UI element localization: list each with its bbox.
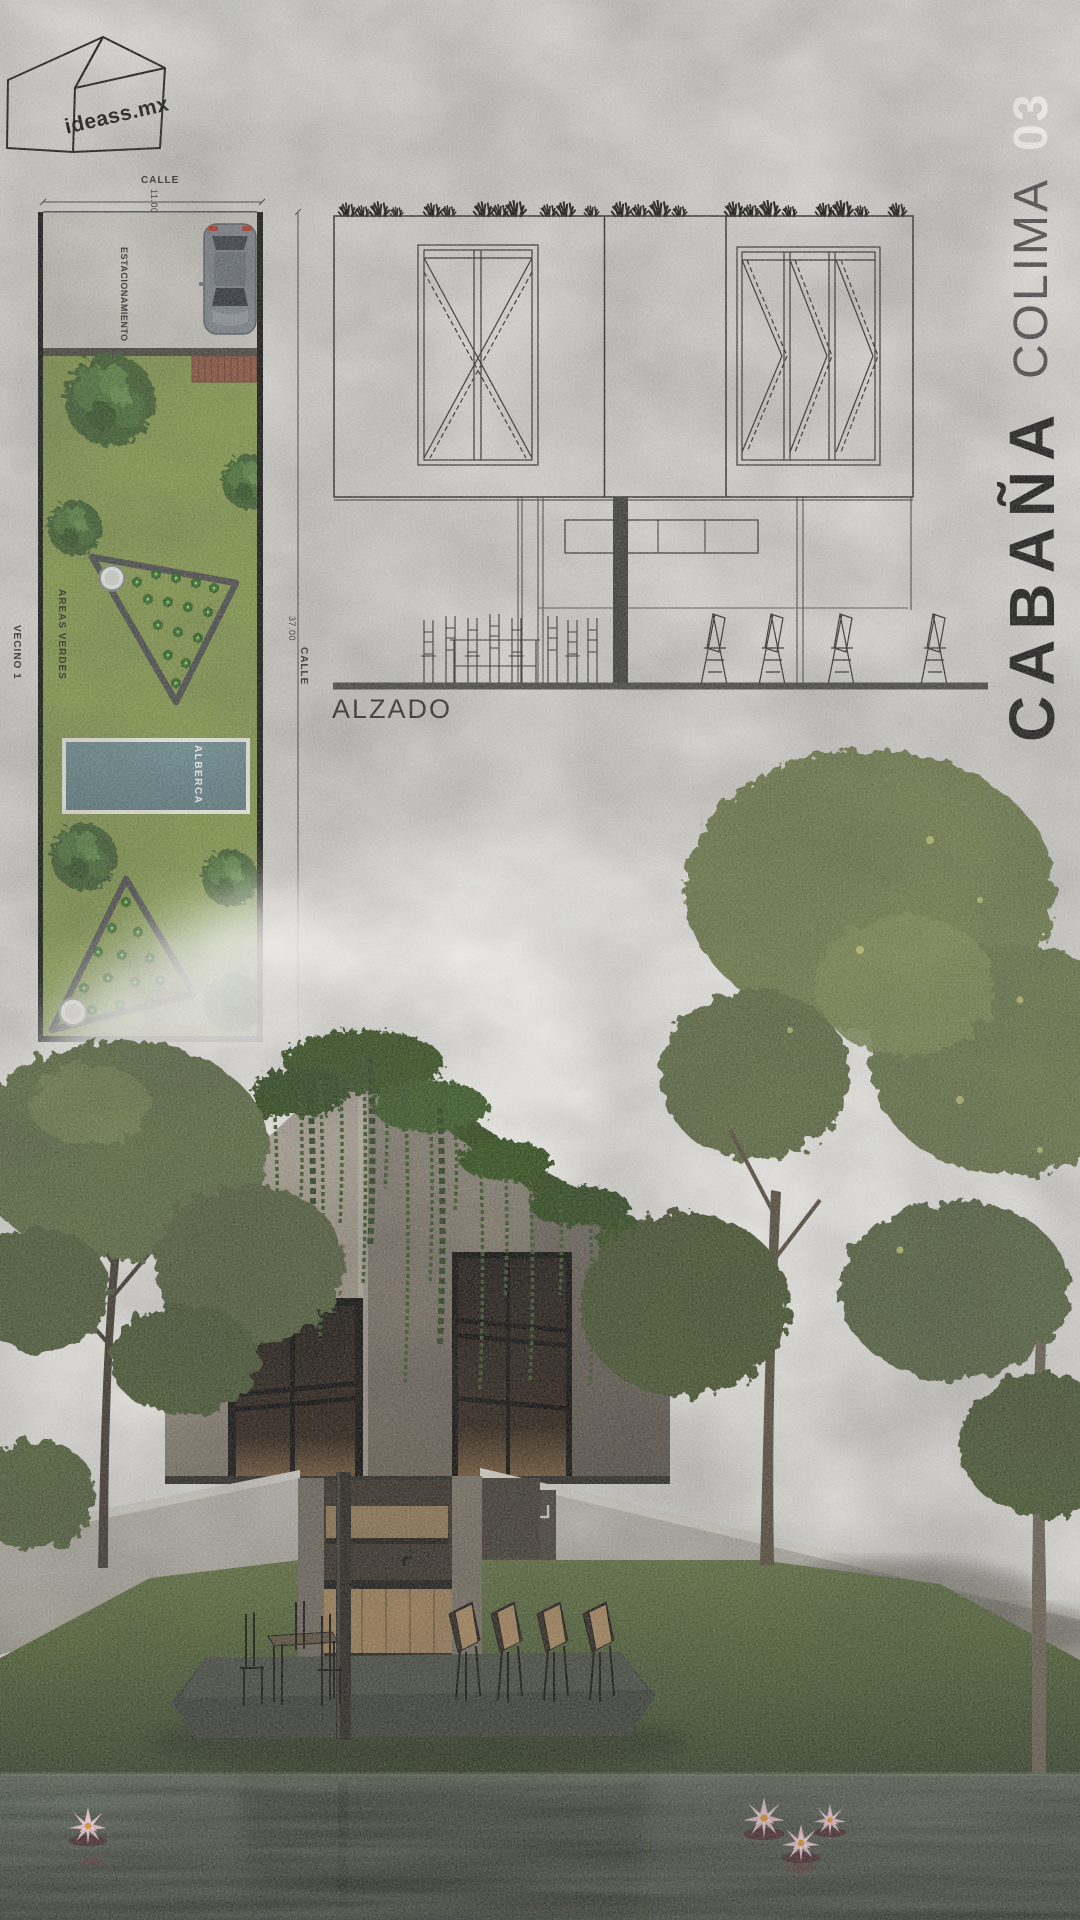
roof-grass-tufts <box>338 200 907 217</box>
deck <box>192 356 257 382</box>
plan-tree-icon <box>65 355 156 446</box>
site-wall <box>43 348 257 356</box>
street-label-right: CALLE <box>298 647 308 685</box>
title-number: 03 <box>1005 91 1058 150</box>
neighbor1-label: VECINO 1 <box>11 625 21 680</box>
elevation-label: ALZADO <box>332 694 452 725</box>
parking-label: ESTACIONAMIENTO <box>119 247 128 342</box>
width-dimension: 11.00 <box>149 189 158 213</box>
render-pond <box>0 1772 1080 1920</box>
elevation-column <box>613 497 628 687</box>
render-view <box>0 740 1080 1920</box>
car-icon <box>199 224 261 334</box>
clerestory-window <box>565 520 758 553</box>
elevation-drawing <box>320 140 1020 740</box>
title-location: COLIMA <box>1005 177 1058 379</box>
street-label-top: CALLE <box>141 176 179 186</box>
presentation-board: ideass.mx <box>0 0 1080 1920</box>
depth-dimension: 37.00 <box>287 616 296 641</box>
folding-chairs-drawing <box>701 614 947 685</box>
green-areas-label: AREAS VERDES <box>56 589 66 680</box>
render-window-right <box>452 1252 572 1482</box>
dining-set-drawing <box>421 614 597 684</box>
project-title: CABAÑACOLIMA03 <box>996 42 1068 742</box>
elevation-upper-box <box>334 216 913 497</box>
title-name: CABAÑA <box>996 405 1068 742</box>
kitchen-counter <box>312 1580 458 1589</box>
plan-tree-icon <box>48 501 103 556</box>
plan-tree-icon <box>222 455 277 510</box>
kitchen-base-cabinets <box>314 1589 456 1661</box>
